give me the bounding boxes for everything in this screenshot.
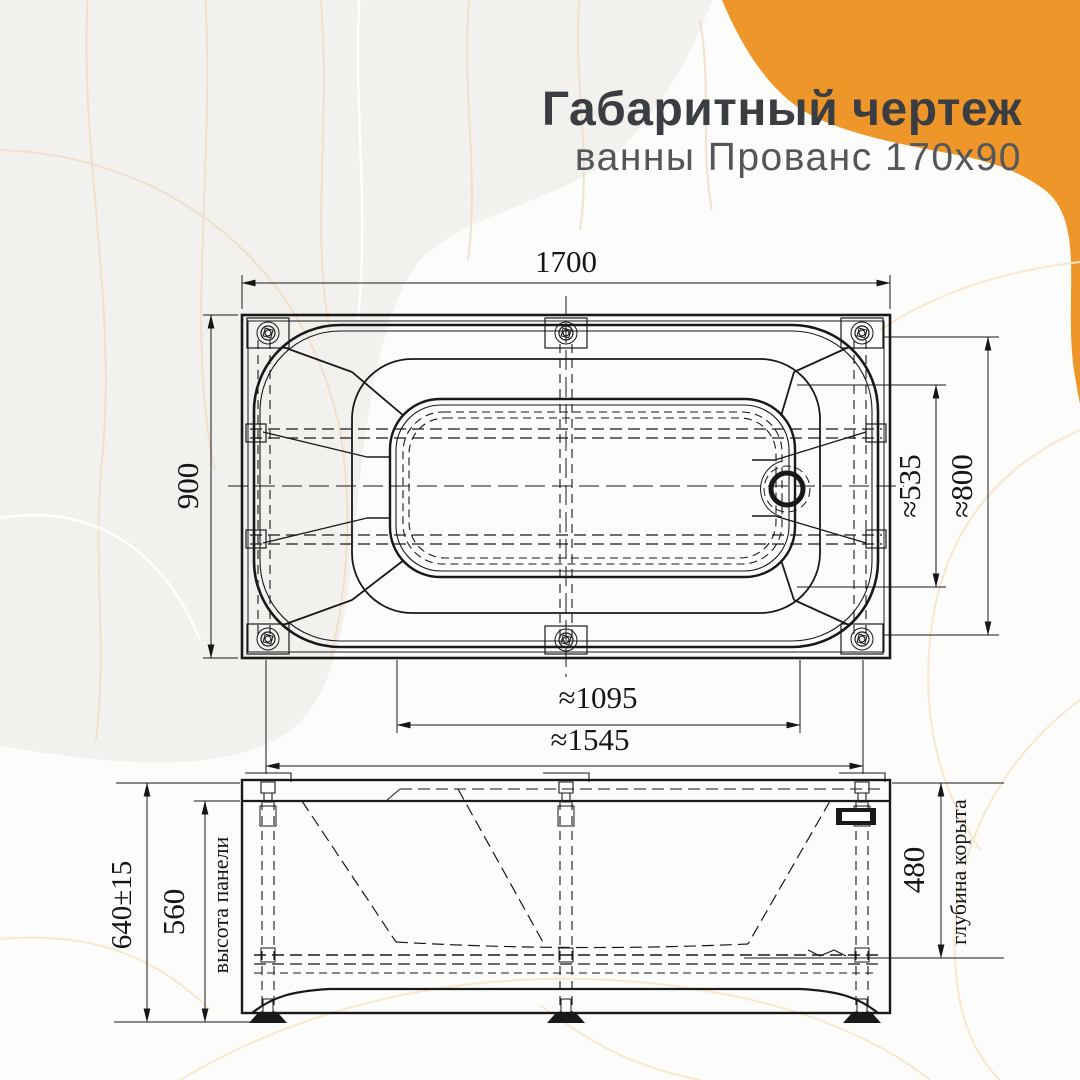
dim-basin-depth-label: глубина корыта	[946, 799, 971, 945]
dim-basin-length: ≈1095	[558, 680, 637, 715]
dim-basin-depth: 480	[896, 847, 931, 894]
foot-icon	[249, 1014, 881, 1023]
dim-rim-length: ≈1545	[550, 722, 629, 757]
leg-details	[260, 806, 870, 1014]
drain-icon	[761, 461, 810, 517]
top-view-drawing: 1700 900 ≈535 ≈800 ≈1095 ≈1545	[170, 244, 999, 774]
top-view-dimensions: 1700 900 ≈535 ≈800 ≈1095 ≈1545	[170, 244, 999, 774]
dim-rim-width: ≈800	[944, 454, 979, 518]
dim-panel-height-label: высота панели	[208, 836, 233, 973]
dim-basin-width: ≈535	[892, 454, 927, 518]
page-title: Габаритный чертеж	[322, 82, 1022, 137]
dim-overall-height: 640±15	[106, 861, 138, 949]
page-subtitle: ванны Прованс 170х90	[322, 136, 1022, 180]
dim-overall-length: 1700	[535, 244, 597, 279]
dim-overall-width: 900	[170, 463, 205, 510]
page: 1700 900 ≈535 ≈800 ≈1095 ≈1545	[0, 0, 1080, 1080]
side-view-drawing: 640±15 560 высота панели 480 глубина кор…	[106, 773, 1004, 1023]
dim-panel-height: 560	[156, 889, 191, 936]
overflow-icon	[836, 808, 876, 825]
rim-bracket-icon	[245, 773, 885, 802]
